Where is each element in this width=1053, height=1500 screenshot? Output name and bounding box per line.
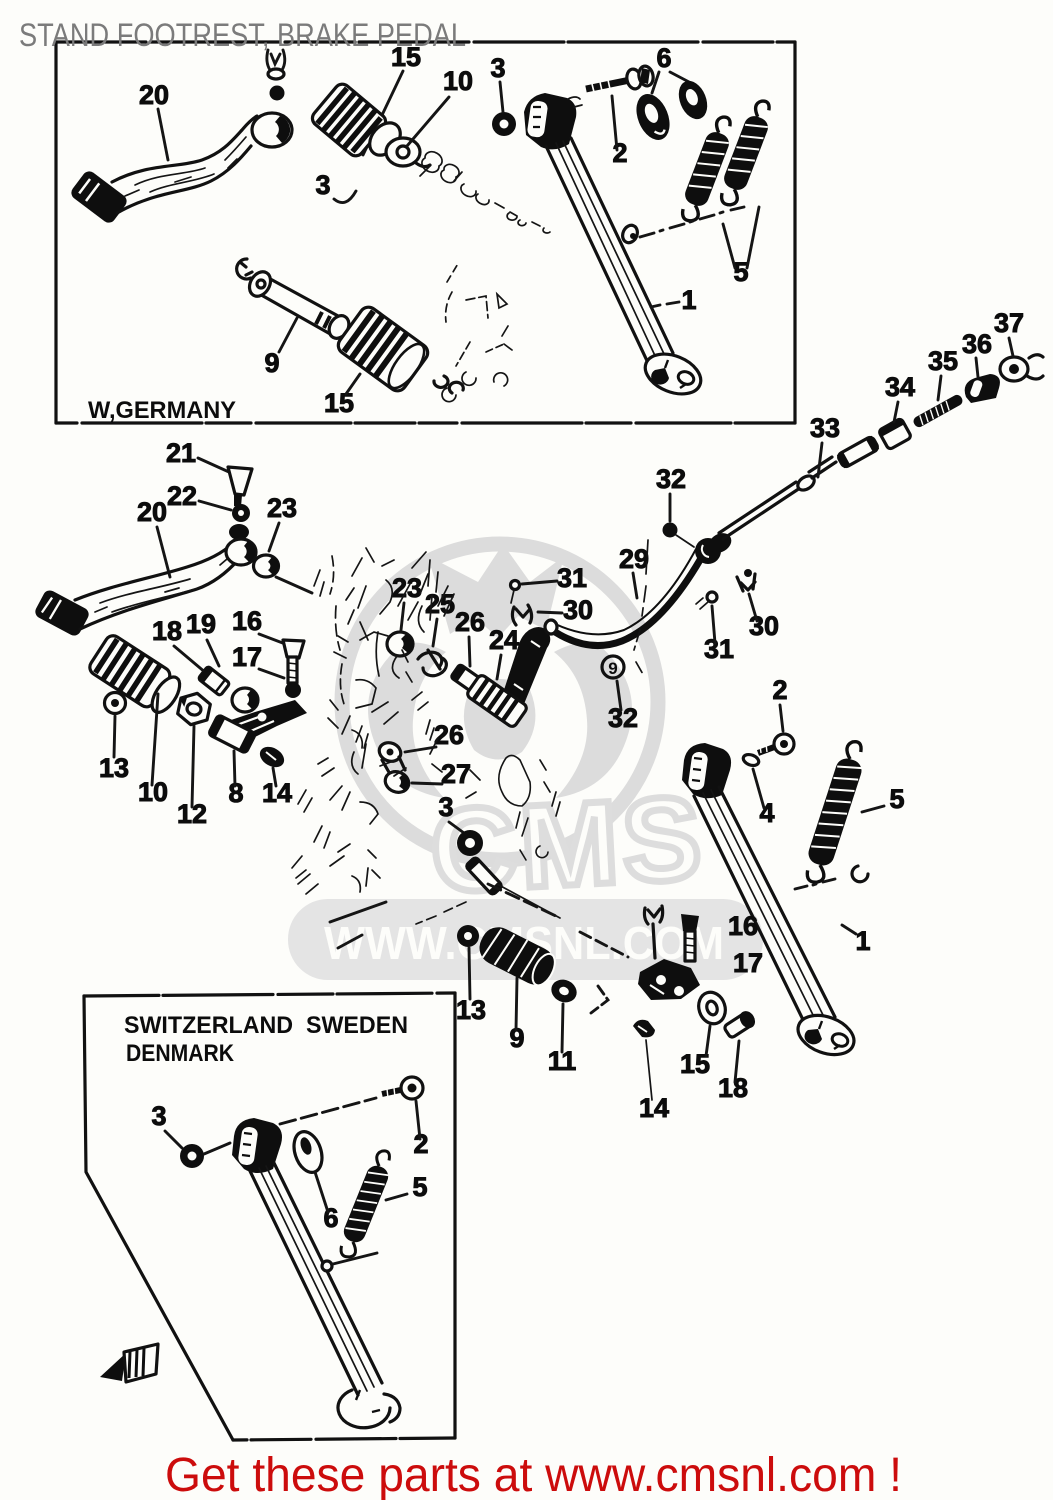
svg-text:5: 5 (412, 1172, 427, 1202)
svg-text:9: 9 (264, 348, 279, 378)
svg-text:3: 3 (151, 1101, 166, 1131)
svg-text:3: 3 (438, 792, 453, 822)
svg-text:14: 14 (262, 778, 292, 808)
svg-text:1: 1 (681, 285, 696, 315)
svg-text:16: 16 (232, 606, 262, 636)
svg-text:1: 1 (855, 926, 870, 956)
svg-text:27: 27 (441, 759, 471, 789)
svg-text:2: 2 (612, 138, 627, 168)
svg-text:24: 24 (489, 625, 519, 655)
svg-text:2: 2 (413, 1129, 428, 1159)
svg-text:35: 35 (928, 346, 958, 376)
svg-text:18: 18 (718, 1073, 748, 1103)
svg-text:29: 29 (619, 544, 649, 574)
svg-text:15: 15 (391, 42, 421, 72)
svg-text:26: 26 (455, 607, 485, 637)
svg-text:W,GERMANY: W,GERMANY (88, 397, 236, 424)
svg-text:16: 16 (728, 911, 758, 941)
svg-text:10: 10 (443, 66, 473, 96)
svg-text:26: 26 (434, 720, 464, 750)
svg-text:18: 18 (152, 616, 182, 646)
svg-text:5: 5 (733, 257, 748, 287)
svg-text:30: 30 (749, 611, 779, 641)
svg-text:30: 30 (563, 595, 593, 625)
svg-text:9: 9 (608, 659, 617, 678)
svg-text:37: 37 (994, 308, 1024, 338)
svg-text:21: 21 (166, 438, 196, 468)
svg-text:31: 31 (704, 634, 734, 664)
svg-text:19: 19 (186, 609, 216, 639)
svg-text:17: 17 (733, 948, 763, 978)
svg-text:20: 20 (139, 80, 169, 110)
svg-text:2: 2 (772, 675, 787, 705)
svg-text:Get these parts at www.cmsnl.c: Get these parts at www.cmsnl.com ! (165, 1449, 902, 1500)
svg-text:31: 31 (557, 563, 587, 593)
svg-text:25: 25 (425, 589, 455, 619)
svg-text:14: 14 (639, 1093, 669, 1123)
svg-text:36: 36 (962, 329, 992, 359)
svg-text:32: 32 (656, 464, 686, 494)
svg-text:20: 20 (137, 497, 167, 527)
svg-text:23: 23 (267, 493, 297, 523)
svg-text:5: 5 (889, 784, 904, 814)
svg-text:3: 3 (490, 53, 505, 83)
svg-text:34: 34 (885, 372, 915, 402)
svg-text:SWITZERLAND SWEDEN: SWITZERLAND SWEDEN (124, 1012, 408, 1039)
svg-text:17: 17 (232, 642, 262, 672)
svg-text:DENMARK: DENMARK (126, 1040, 235, 1067)
svg-text:22: 22 (167, 481, 197, 511)
svg-text:3: 3 (315, 170, 330, 200)
svg-text:33: 33 (810, 413, 840, 443)
svg-text:32: 32 (608, 703, 638, 733)
svg-text:15: 15 (324, 388, 354, 418)
svg-text:6: 6 (656, 43, 671, 73)
